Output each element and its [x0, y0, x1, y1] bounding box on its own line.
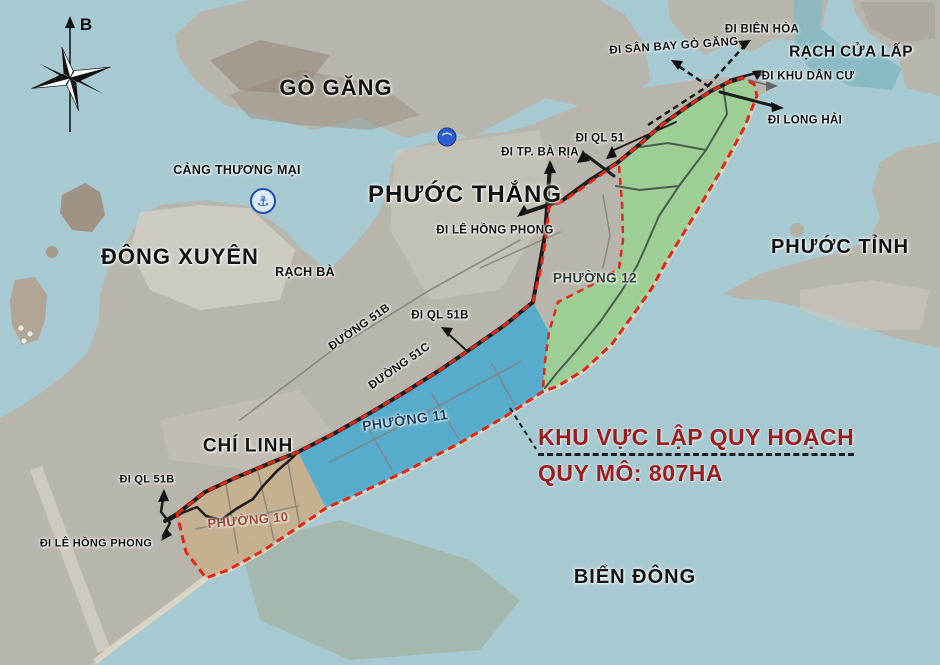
- anchor-icon: ⚓: [250, 188, 276, 214]
- tank-dot: [22, 339, 27, 344]
- planning-annotation: KHU VỰC LẬP QUY HOẠCH QUY MÔ: 807HA: [538, 424, 854, 487]
- tank-dot: [19, 326, 24, 331]
- map-graphics: [0, 0, 940, 665]
- label-di-long-hai: ĐI LONG HẢI: [768, 115, 842, 127]
- label-go-gang: GÒ GĂNG: [279, 77, 392, 99]
- label-phuong-12: PHƯỜNG 12: [553, 271, 637, 285]
- label-di-khu-dan-cu: ĐI KHU DÂN CƯ: [762, 71, 855, 83]
- label-di-ql-51b-mid: ĐI QL 51B: [411, 310, 468, 322]
- label-phuoc-thang: PHƯỚC THẮNG: [368, 183, 562, 207]
- label-dong-xuyen: ĐÔNG XUYÊN: [101, 246, 259, 268]
- tank-dot: [28, 332, 33, 337]
- label-di-ql-51b-left: ĐI QL 51B: [119, 475, 174, 486]
- annotation-line1: KHU VỰC LẬP QUY HOẠCH: [538, 424, 854, 456]
- label-di-le-hong-phong-left: ĐI LÊ HỒNG PHONG: [40, 539, 152, 550]
- label-di-tp-ba-ria: ĐI TP. BÀ RỊA: [501, 147, 579, 159]
- label-cang-thuong-mai: CẢNG THƯƠNG MẠI: [173, 164, 301, 177]
- label-di-le-hong-phong: ĐI LÊ HỒNG PHONG: [436, 225, 553, 237]
- label-bien-dong: BIỂN ĐÔNG: [574, 567, 696, 587]
- annotation-line2: QUY MÔ: 807HA: [538, 460, 854, 486]
- compass-north-label: B: [80, 15, 92, 35]
- island-bay: [790, 223, 804, 237]
- label-di-bien-hoa: ĐI BIÊN HÒA: [725, 24, 799, 36]
- label-rach-cua-lap: RẠCH CỬA LẤP: [789, 44, 913, 60]
- label-phuoc-tinh: PHƯỚC TỈNH: [771, 237, 909, 257]
- label-chi-linh: CHÍ LINH: [203, 437, 293, 456]
- planning-map-canvas: GÒ GĂNG CẢNG THƯƠNG MẠI ĐÔNG XUYÊN RẠCH …: [0, 0, 940, 665]
- island-west-2: [46, 246, 58, 258]
- bridge-icon: ⌒: [438, 128, 457, 147]
- label-di-ql-51: ĐI QL 51: [576, 133, 625, 145]
- label-rach-ba: RẠCH BÀ: [275, 266, 335, 279]
